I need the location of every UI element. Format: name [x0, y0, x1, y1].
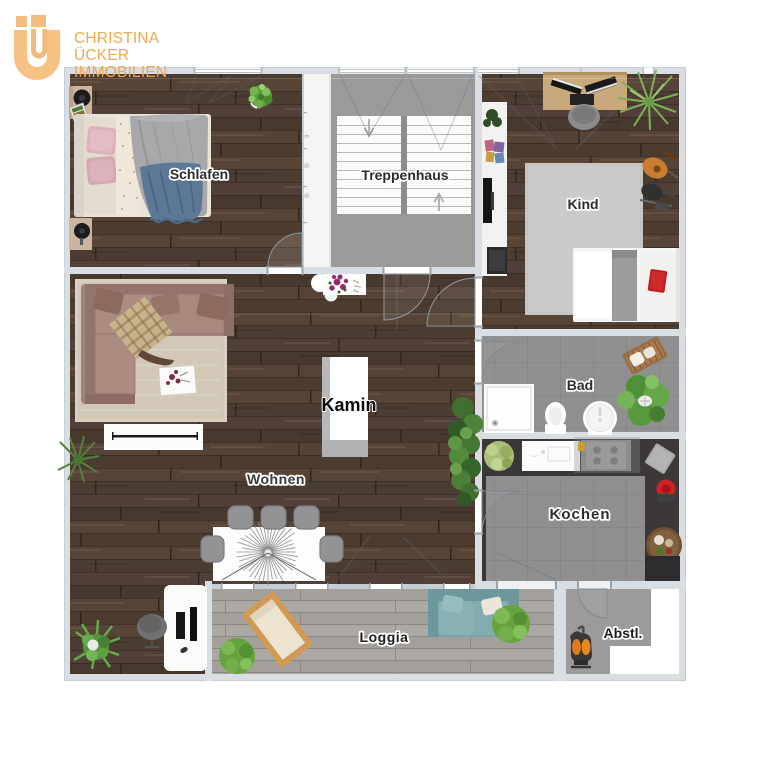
svg-text:Loggia: Loggia	[360, 629, 409, 645]
svg-text:Kamin: Kamin	[321, 395, 376, 415]
svg-text:Kochen: Kochen	[549, 506, 610, 523]
svg-text:IMMOBILIEN: IMMOBILIEN	[74, 64, 167, 81]
svg-text:Abstl.: Abstl.	[604, 625, 643, 641]
svg-text:Schlafen: Schlafen	[170, 166, 228, 182]
svg-text:Wohnen: Wohnen	[247, 471, 305, 487]
svg-text:9l: 9l	[305, 193, 311, 198]
svg-text:ÜCKER: ÜCKER	[74, 46, 129, 64]
svg-text:Bad: Bad	[567, 377, 593, 393]
svg-text:Kind: Kind	[567, 196, 598, 212]
svg-text:CHRISTINA: CHRISTINA	[74, 30, 160, 47]
svg-text:9l: 9l	[305, 163, 311, 168]
svg-text:Treppenhaus: Treppenhaus	[361, 167, 448, 183]
